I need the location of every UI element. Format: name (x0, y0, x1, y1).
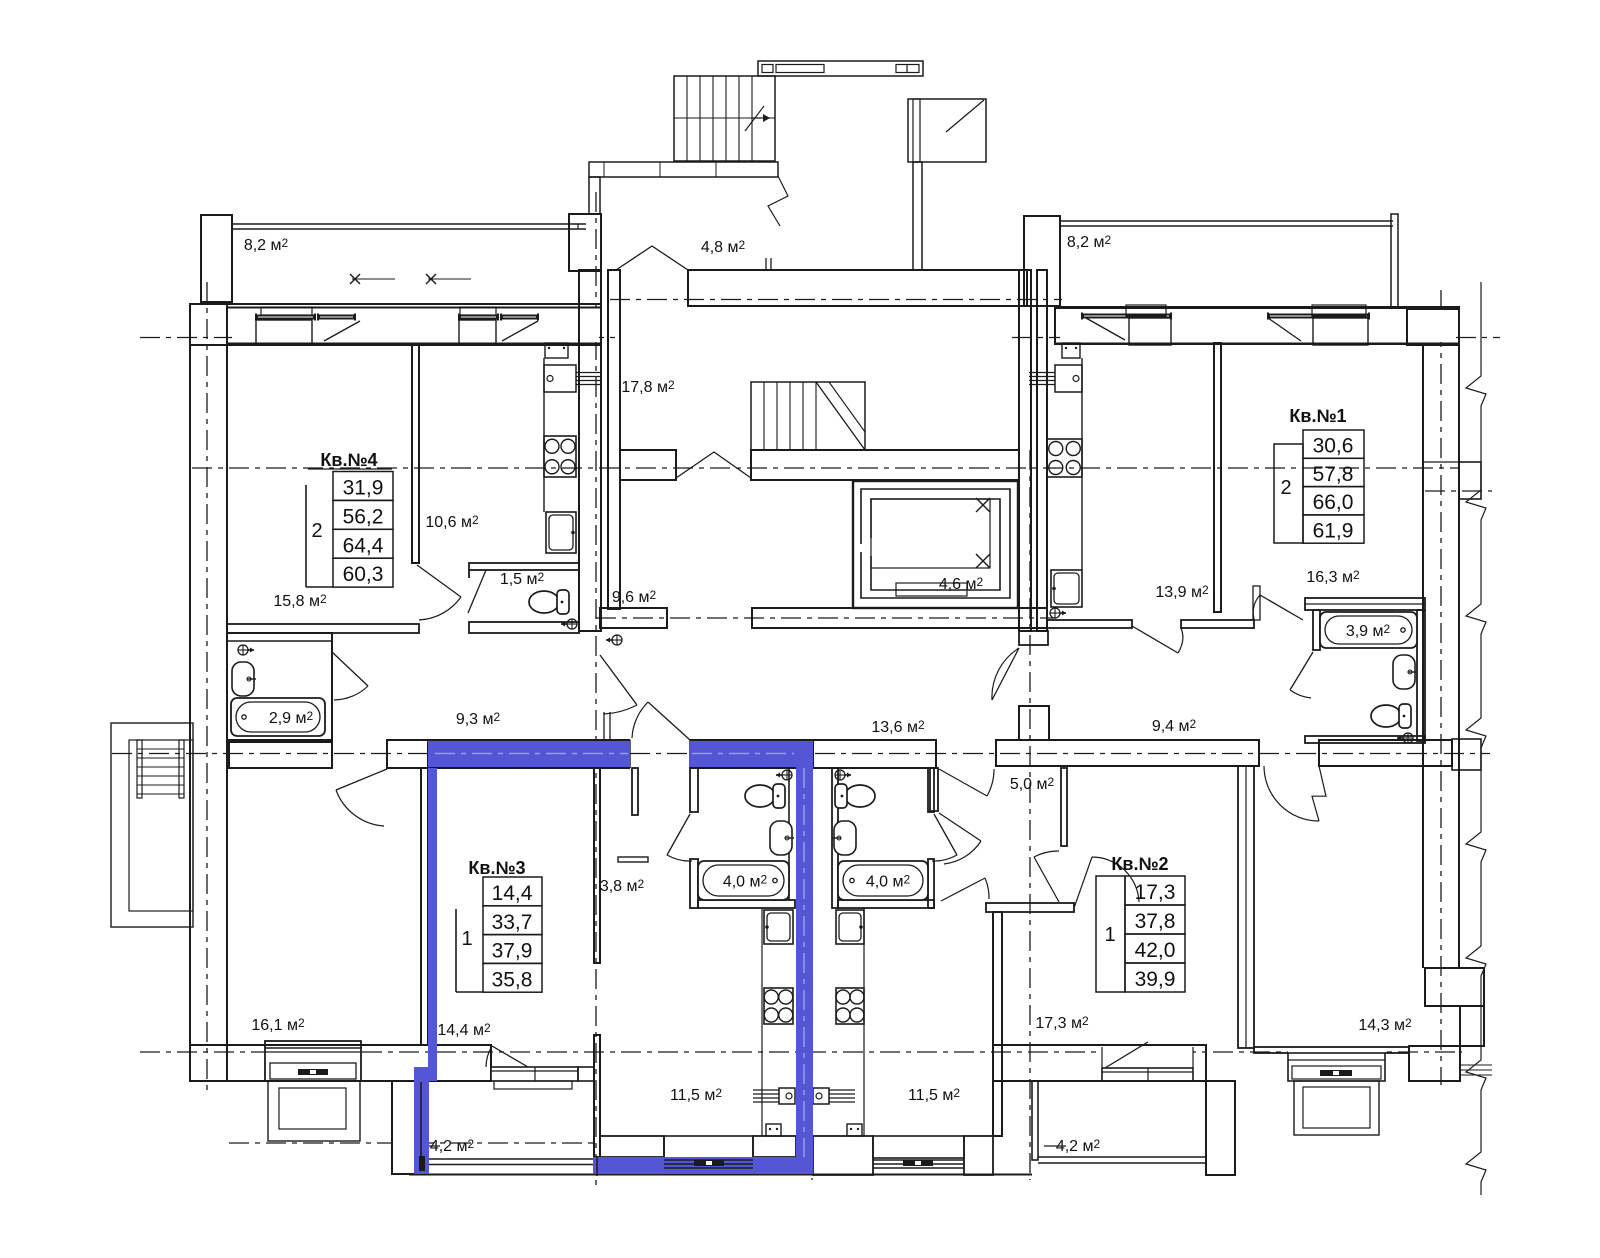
svg-text:16,1 м2: 16,1 м2 (251, 1016, 305, 1034)
svg-text:15,8 м2: 15,8 м2 (273, 592, 327, 610)
svg-text:17,3 м2: 17,3 м2 (1035, 1014, 1089, 1032)
svg-text:57,8: 57,8 (1313, 463, 1354, 486)
svg-text:Кв.№4: Кв.№4 (320, 450, 377, 470)
svg-text:14,3 м2: 14,3 м2 (1358, 1016, 1412, 1034)
svg-text:31,9: 31,9 (343, 477, 384, 500)
svg-text:42,0: 42,0 (1135, 939, 1176, 962)
svg-text:66,0: 66,0 (1313, 491, 1354, 514)
svg-text:37,9: 37,9 (492, 940, 533, 963)
svg-text:14,4: 14,4 (492, 882, 533, 905)
svg-text:13,6 м2: 13,6 м2 (871, 718, 925, 736)
svg-text:64,4: 64,4 (343, 534, 384, 557)
svg-text:Кв.№2: Кв.№2 (1111, 854, 1168, 874)
svg-text:16,3 м2: 16,3 м2 (1306, 568, 1360, 586)
svg-text:39,9: 39,9 (1135, 968, 1176, 991)
svg-text:17,8 м2: 17,8 м2 (621, 378, 675, 396)
svg-text:1: 1 (461, 928, 472, 950)
svg-text:61,9: 61,9 (1313, 519, 1354, 542)
svg-text:2: 2 (311, 520, 322, 542)
svg-text:13,9 м2: 13,9 м2 (1155, 583, 1209, 601)
svg-text:Кв.№3: Кв.№3 (468, 858, 525, 878)
svg-text:17,3: 17,3 (1135, 881, 1176, 904)
svg-text:60,3: 60,3 (343, 563, 384, 586)
svg-text:10,6 м2: 10,6 м2 (425, 513, 479, 531)
svg-text:30,6: 30,6 (1313, 435, 1354, 458)
svg-text:11,5 м2: 11,5 м2 (670, 1086, 722, 1104)
svg-text:33,7: 33,7 (492, 911, 533, 934)
svg-text:37,8: 37,8 (1135, 910, 1176, 933)
svg-text:1: 1 (1104, 924, 1115, 946)
svg-text:56,2: 56,2 (343, 505, 384, 528)
svg-text:35,8: 35,8 (492, 968, 533, 991)
svg-text:2: 2 (1280, 477, 1291, 499)
svg-text:14,4 м2: 14,4 м2 (437, 1021, 491, 1039)
svg-text:Кв.№1: Кв.№1 (1289, 406, 1346, 426)
svg-text:11,5 м2: 11,5 м2 (908, 1086, 960, 1104)
